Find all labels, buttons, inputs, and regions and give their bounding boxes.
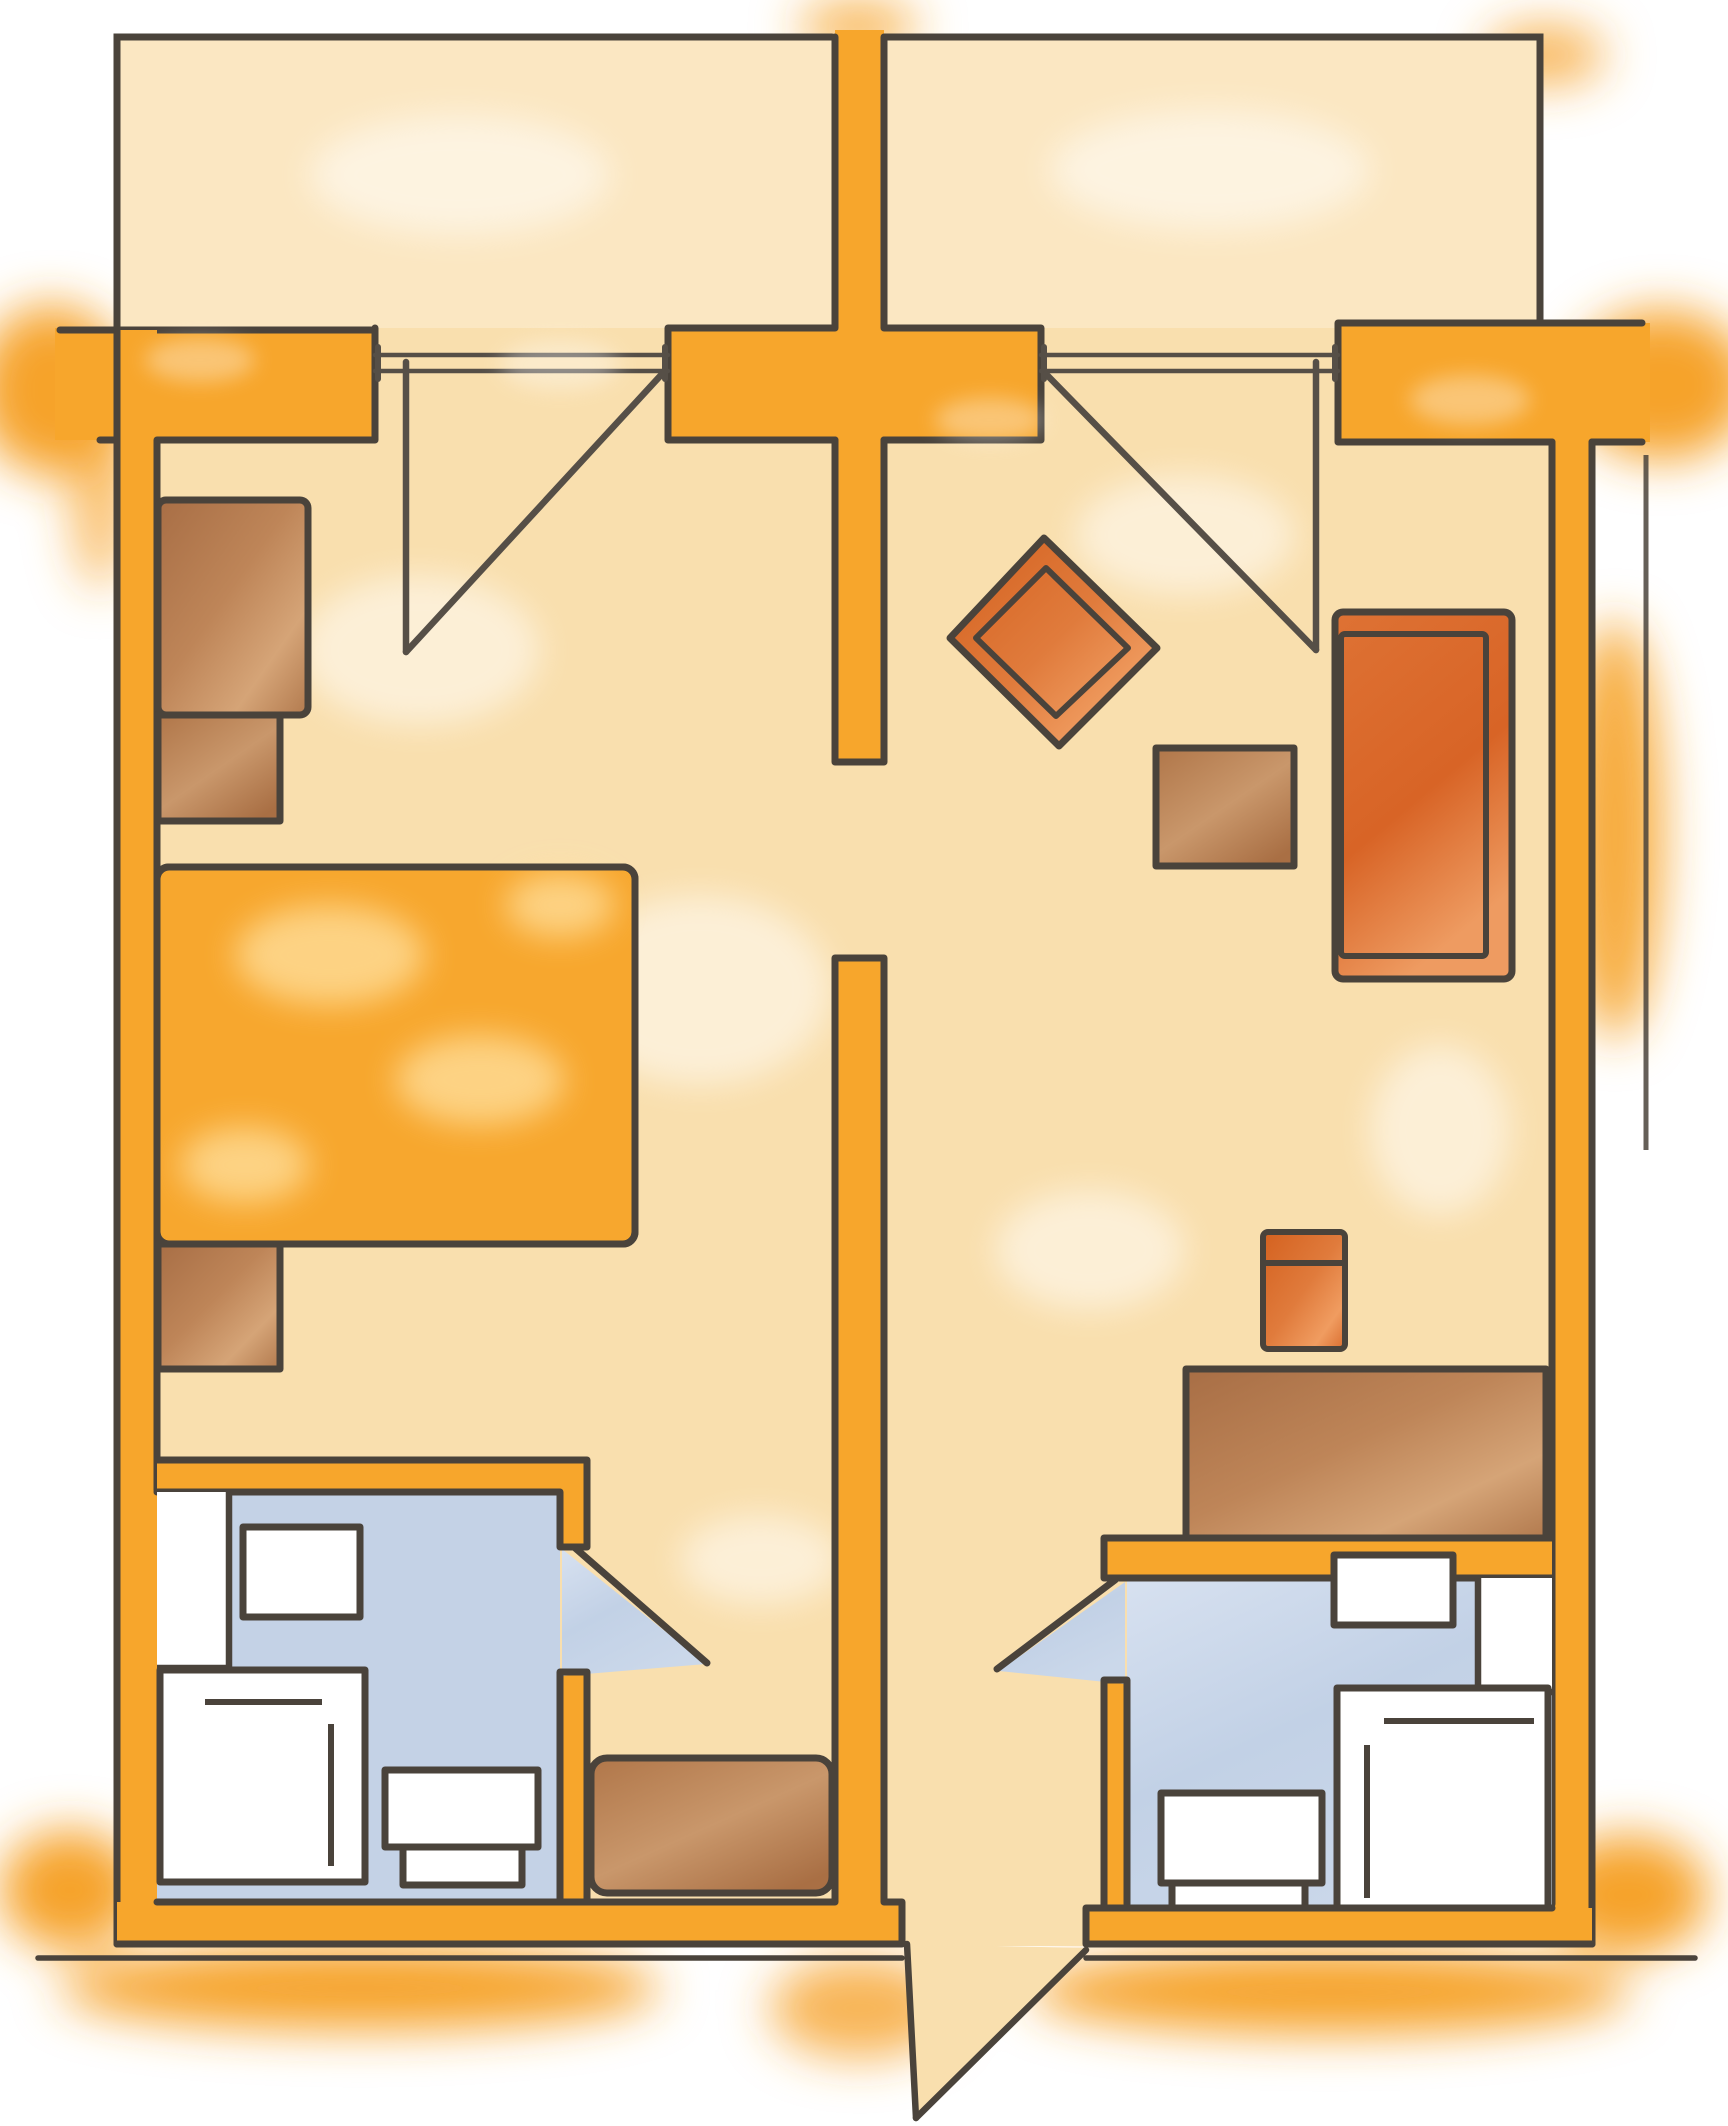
facade-wall-band bbox=[55, 323, 1650, 442]
washbasin bbox=[243, 1527, 360, 1617]
left-bathroom-top-wall bbox=[157, 1460, 587, 1492]
right-wall bbox=[1552, 442, 1592, 1946]
sofa bbox=[1335, 612, 1512, 979]
sideboard-desk bbox=[1186, 1369, 1546, 1538]
double-bed bbox=[157, 867, 635, 1244]
right-bathroom-top-wall bbox=[1104, 1538, 1552, 1578]
nightstand-upper bbox=[158, 715, 280, 821]
floor-plan bbox=[0, 0, 1728, 2126]
washbasin-right bbox=[1334, 1555, 1453, 1625]
storage-cabinet bbox=[591, 1758, 832, 1893]
central-wall bbox=[835, 440, 884, 1904]
bathtub bbox=[160, 1670, 365, 1882]
bathtub-right bbox=[1337, 1688, 1548, 1916]
coffee-table bbox=[1156, 748, 1294, 866]
left-wall bbox=[117, 330, 157, 1944]
wardrobe bbox=[158, 500, 308, 715]
toilet-right bbox=[1161, 1793, 1322, 1919]
nightstand-lower bbox=[158, 1244, 280, 1369]
vanity-counter-right bbox=[1478, 1578, 1552, 1692]
toilet bbox=[385, 1770, 538, 1885]
vanity-counter bbox=[157, 1492, 229, 1668]
desk-chair bbox=[1263, 1232, 1345, 1349]
